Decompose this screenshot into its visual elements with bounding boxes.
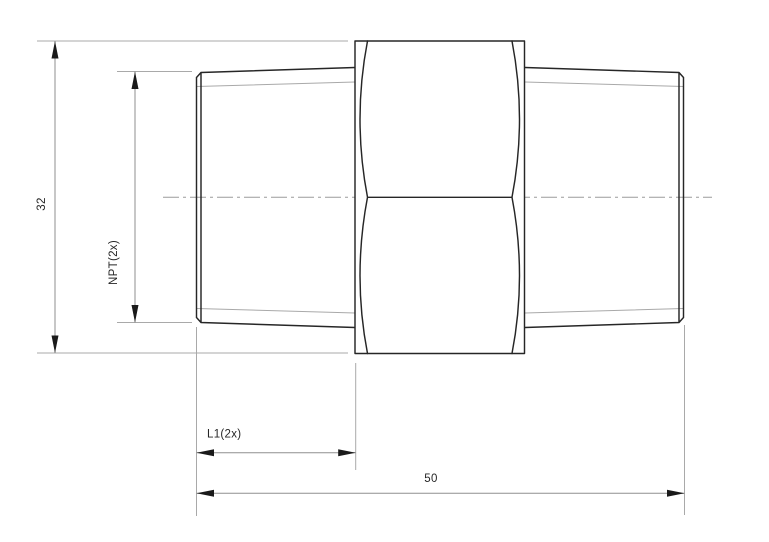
dim-thread-length-extension-lines <box>197 327 356 516</box>
dim-thread-length-label: L1(2x) <box>207 429 241 441</box>
dim-thread-spec-extension-lines <box>117 72 192 323</box>
dim-outer-diameter-label: 32 <box>36 197 48 210</box>
dim-overall-length-label: 50 <box>424 473 437 485</box>
dim-thread-spec: NPT(2x) <box>108 72 192 323</box>
hex-body <box>355 41 525 354</box>
dim-thread-spec-arrow-top <box>132 72 139 90</box>
dim-thread-spec-arrow-bottom <box>132 305 139 323</box>
dim-overall-length-arrow-right <box>667 490 685 497</box>
dim-outer-diameter-arrow-top <box>52 41 59 59</box>
dim-thread-spec-label: NPT(2x) <box>108 240 120 285</box>
drawing-page: 32 NPT(2x) L1(2x) 50 <box>0 0 769 542</box>
technical-drawing-canvas: 32 NPT(2x) L1(2x) 50 <box>0 0 769 542</box>
dim-thread-length-arrow-left <box>197 449 215 456</box>
dim-overall-length-arrow-left <box>197 490 215 497</box>
dim-thread-length: L1(2x) <box>197 327 356 516</box>
dim-thread-length-arrow-right <box>338 449 356 456</box>
dim-outer-diameter-arrow-bottom <box>52 336 59 354</box>
